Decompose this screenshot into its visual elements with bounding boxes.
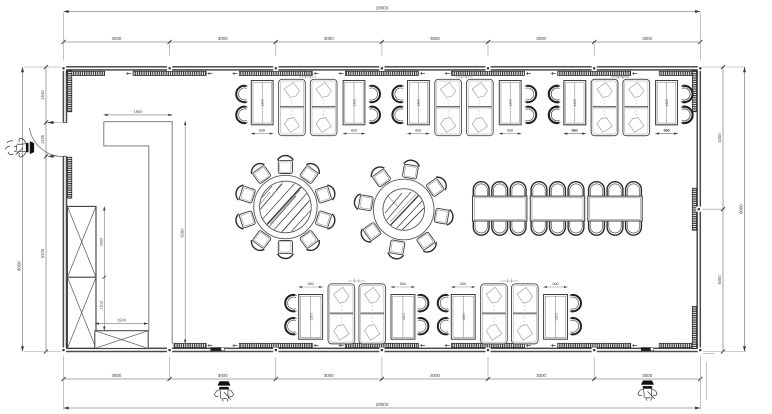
- svg-text:8000: 8000: [739, 204, 744, 214]
- svg-text:6280: 6280: [180, 228, 185, 238]
- svg-text:3000: 3000: [324, 373, 334, 378]
- svg-text:1540: 1540: [40, 90, 45, 100]
- svg-text:3000: 3000: [536, 36, 546, 41]
- svg-text:1940: 1940: [134, 109, 144, 114]
- svg-text:4000: 4000: [717, 275, 722, 285]
- svg-text:3000: 3000: [324, 36, 334, 41]
- svg-text:3000: 3000: [430, 36, 440, 41]
- svg-text:3000: 3000: [112, 36, 122, 41]
- svg-text:1510: 1510: [100, 301, 104, 309]
- svg-text:4000: 4000: [717, 133, 722, 143]
- svg-text:3000: 3000: [218, 36, 228, 41]
- svg-text:8000: 8000: [17, 261, 22, 271]
- svg-text:3000: 3000: [536, 373, 546, 378]
- svg-text:3000: 3000: [642, 36, 652, 41]
- svg-text:1500: 1500: [117, 318, 127, 323]
- svg-text:3000: 3000: [642, 373, 652, 378]
- svg-text:18000: 18000: [376, 402, 389, 407]
- svg-text:5325: 5325: [40, 248, 45, 258]
- svg-text:18000: 18000: [376, 5, 389, 10]
- svg-text:2000: 2000: [100, 238, 104, 246]
- svg-text:3000: 3000: [430, 373, 440, 378]
- svg-text:1135: 1135: [40, 134, 45, 144]
- svg-text:3000: 3000: [218, 373, 228, 378]
- svg-text:3000: 3000: [112, 373, 122, 378]
